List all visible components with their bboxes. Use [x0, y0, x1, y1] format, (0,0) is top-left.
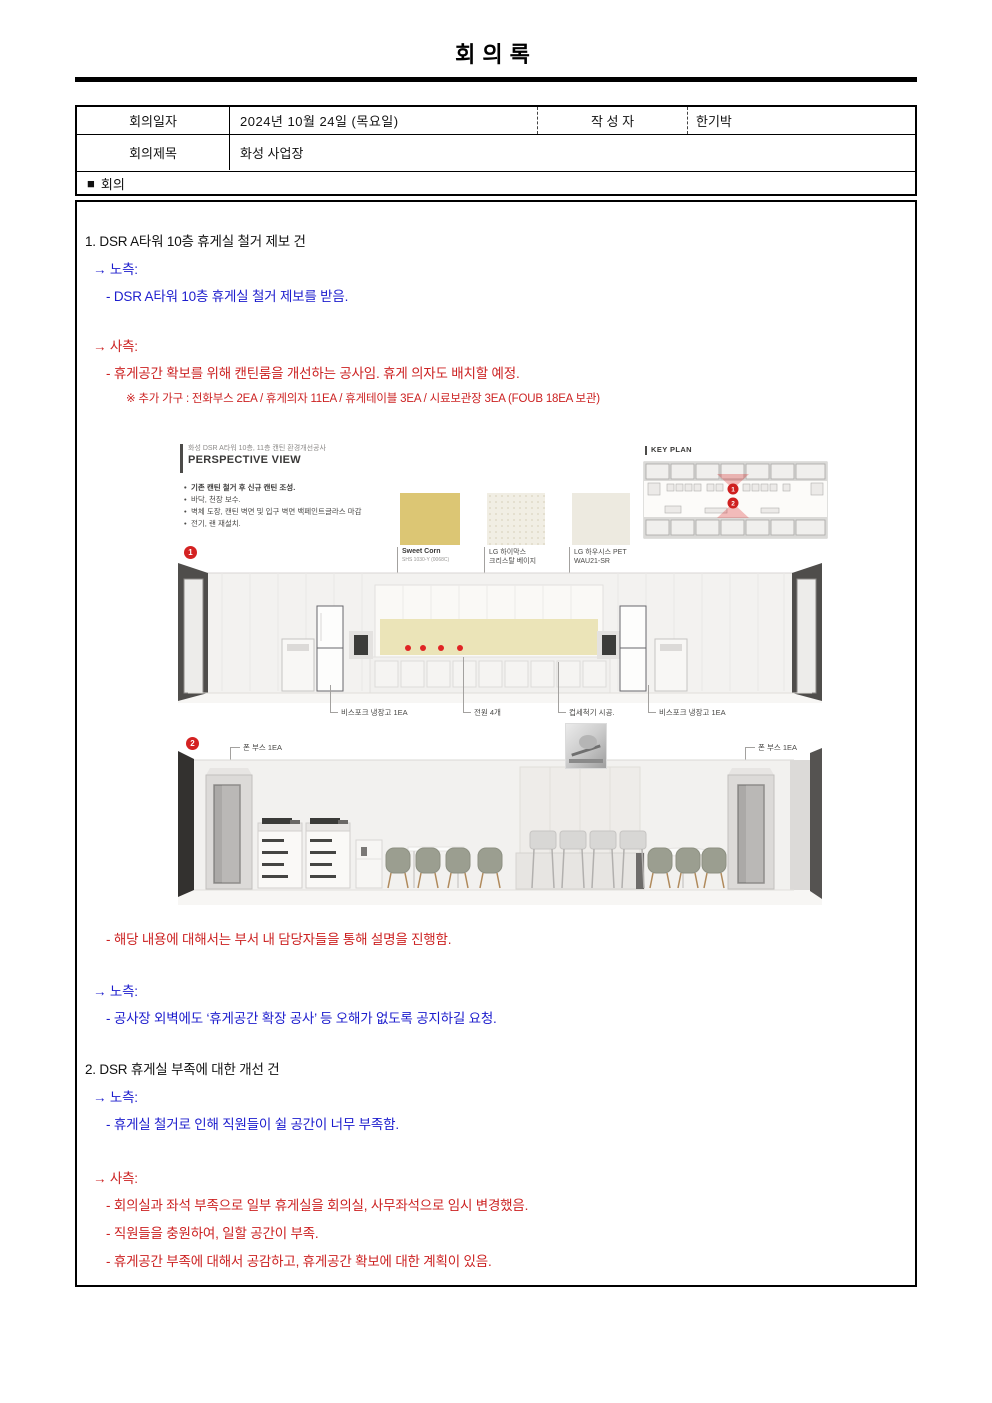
union-side-label: → 노측:: [93, 1086, 138, 1106]
meeting-date-value: 2024년 10월 24일 (목요일): [230, 107, 537, 134]
figure-view-title: PERSPECTIVE VIEW: [188, 454, 301, 466]
callout-connector: [648, 712, 656, 713]
mgmt-side-point: - 휴게공간 확보를 위해 캔틴룸을 개선하는 공사임. 휴게 의자도 배치할 …: [106, 362, 520, 382]
agenda-item-2-heading: 2. DSR 휴게실 부족에 대한 개선 건: [85, 1058, 280, 1078]
author-label: 작 성 자: [537, 107, 687, 134]
section-marker-icon: ■: [87, 176, 95, 191]
section-title: 회의: [101, 174, 125, 193]
inset-photo-dishwashing: [565, 723, 607, 769]
mgmt-side-label: → 사측:: [93, 1167, 138, 1187]
mgmt-side-point: - 회의실과 좌석 부족으로 일부 휴게실을 회의실, 사무좌석으로 임시 변경…: [106, 1194, 528, 1214]
figure-bullet: 전기, 랜 재설치.: [184, 518, 362, 530]
keyplan-accent-bar: [645, 446, 647, 455]
mgmt-side-point: - 직원들을 충원하여, 일할 공간이 부족.: [106, 1222, 318, 1242]
meeting-date-label: 회의일자: [77, 107, 230, 134]
callout-fridge-left: 비스포크 냉장고 1EA: [341, 707, 408, 718]
callout-connector: [330, 712, 338, 713]
keyplan-marker-1: 1: [731, 487, 735, 494]
mgmt-side-note: ※ 추가 가구 : 전화부스 2EA / 휴게의자 11EA / 휴게테이블 3…: [126, 390, 600, 406]
mgmt-side-point: - 해당 내용에 대해서는 부서 내 담당자들을 통해 설명을 진행함.: [106, 928, 451, 948]
mgmt-side-point: - 휴게공간 부족에 대해서 공감하고, 휴게공간 확보에 대한 계획이 있음.: [106, 1250, 492, 1270]
meeting-subject-label: 회의제목: [77, 135, 230, 170]
rendering-view-2-lounge: [178, 747, 822, 905]
callout-connector: [463, 712, 471, 713]
material-swatch-sweet-corn: [400, 493, 460, 545]
callout-connector: [558, 662, 559, 712]
callout-connector: [558, 712, 566, 713]
meeting-minutes-page: 회의록 회의일자 2024년 10월 24일 (목요일) 작 성 자 한기박 회…: [0, 0, 992, 1403]
material-swatch-hausys-pet: [572, 493, 630, 545]
union-side-label: → 노측:: [93, 980, 138, 1000]
keyplan-title: KEY PLAN: [651, 445, 692, 454]
page-title: 회의록: [0, 37, 992, 69]
rendering-view-1-canteen: [178, 553, 822, 703]
info-table: 회의일자 2024년 10월 24일 (목요일) 작 성 자 한기박 회의제목 …: [75, 105, 917, 196]
figure-bullet: 기존 캔틴 철거 후 신규 캔틴 조성.: [184, 482, 362, 494]
meeting-subject-value: 화성 사업장: [230, 135, 915, 170]
union-side-point: - DSR A타워 10층 휴게실 철거 제보를 받음.: [106, 285, 348, 305]
callout-connector: [648, 685, 649, 712]
title-divider: [75, 77, 917, 82]
figure-bullet-list: 기존 캔틴 철거 후 신규 캔틴 조성. 바닥, 천장 보수. 벽체 도장, 캔…: [184, 482, 362, 530]
callout-cup-washer: 컵세척기 시공.: [569, 707, 615, 718]
union-side-point: - 공사장 외벽에도 ‘휴게공간 확장 공사’ 등 오해가 없도록 공지하길 요…: [106, 1007, 497, 1027]
figure-accent-bar: [180, 444, 183, 473]
section-header: ■ 회의: [77, 172, 915, 194]
keyplan-floorplan: 1 2: [643, 461, 828, 539]
figure-bullet: 벽체 도장, 캔틴 벽면 및 입구 벽면 백페인트글라스 마감: [184, 506, 362, 518]
material-swatch-himacs-beige: [487, 493, 545, 545]
union-side-label: → 노측:: [93, 258, 138, 278]
perspective-figure: 화성 DSR A타워 10층, 11층 캔틴 환경개선공사 PERSPECTIV…: [170, 425, 830, 907]
mgmt-side-label: → 사측:: [93, 335, 138, 355]
callout-power-outlets: 전원 4개: [474, 707, 501, 718]
callout-connector: [463, 657, 464, 712]
figure-project-caption: 화성 DSR A타워 10층, 11층 캔틴 환경개선공사: [188, 443, 326, 453]
author-value: 한기박: [687, 107, 915, 134]
agenda-item-1-heading: 1. DSR A타워 10층 휴게실 철거 제보 건: [85, 230, 306, 250]
figure-bullet: 바닥, 천장 보수.: [184, 494, 362, 506]
keyplan-marker-2: 2: [731, 501, 735, 508]
callout-fridge-right: 비스포크 냉장고 1EA: [659, 707, 726, 718]
union-side-point: - 휴게실 철거로 인해 직원들이 쉴 공간이 너무 부족함.: [106, 1113, 399, 1133]
callout-connector: [330, 685, 331, 712]
